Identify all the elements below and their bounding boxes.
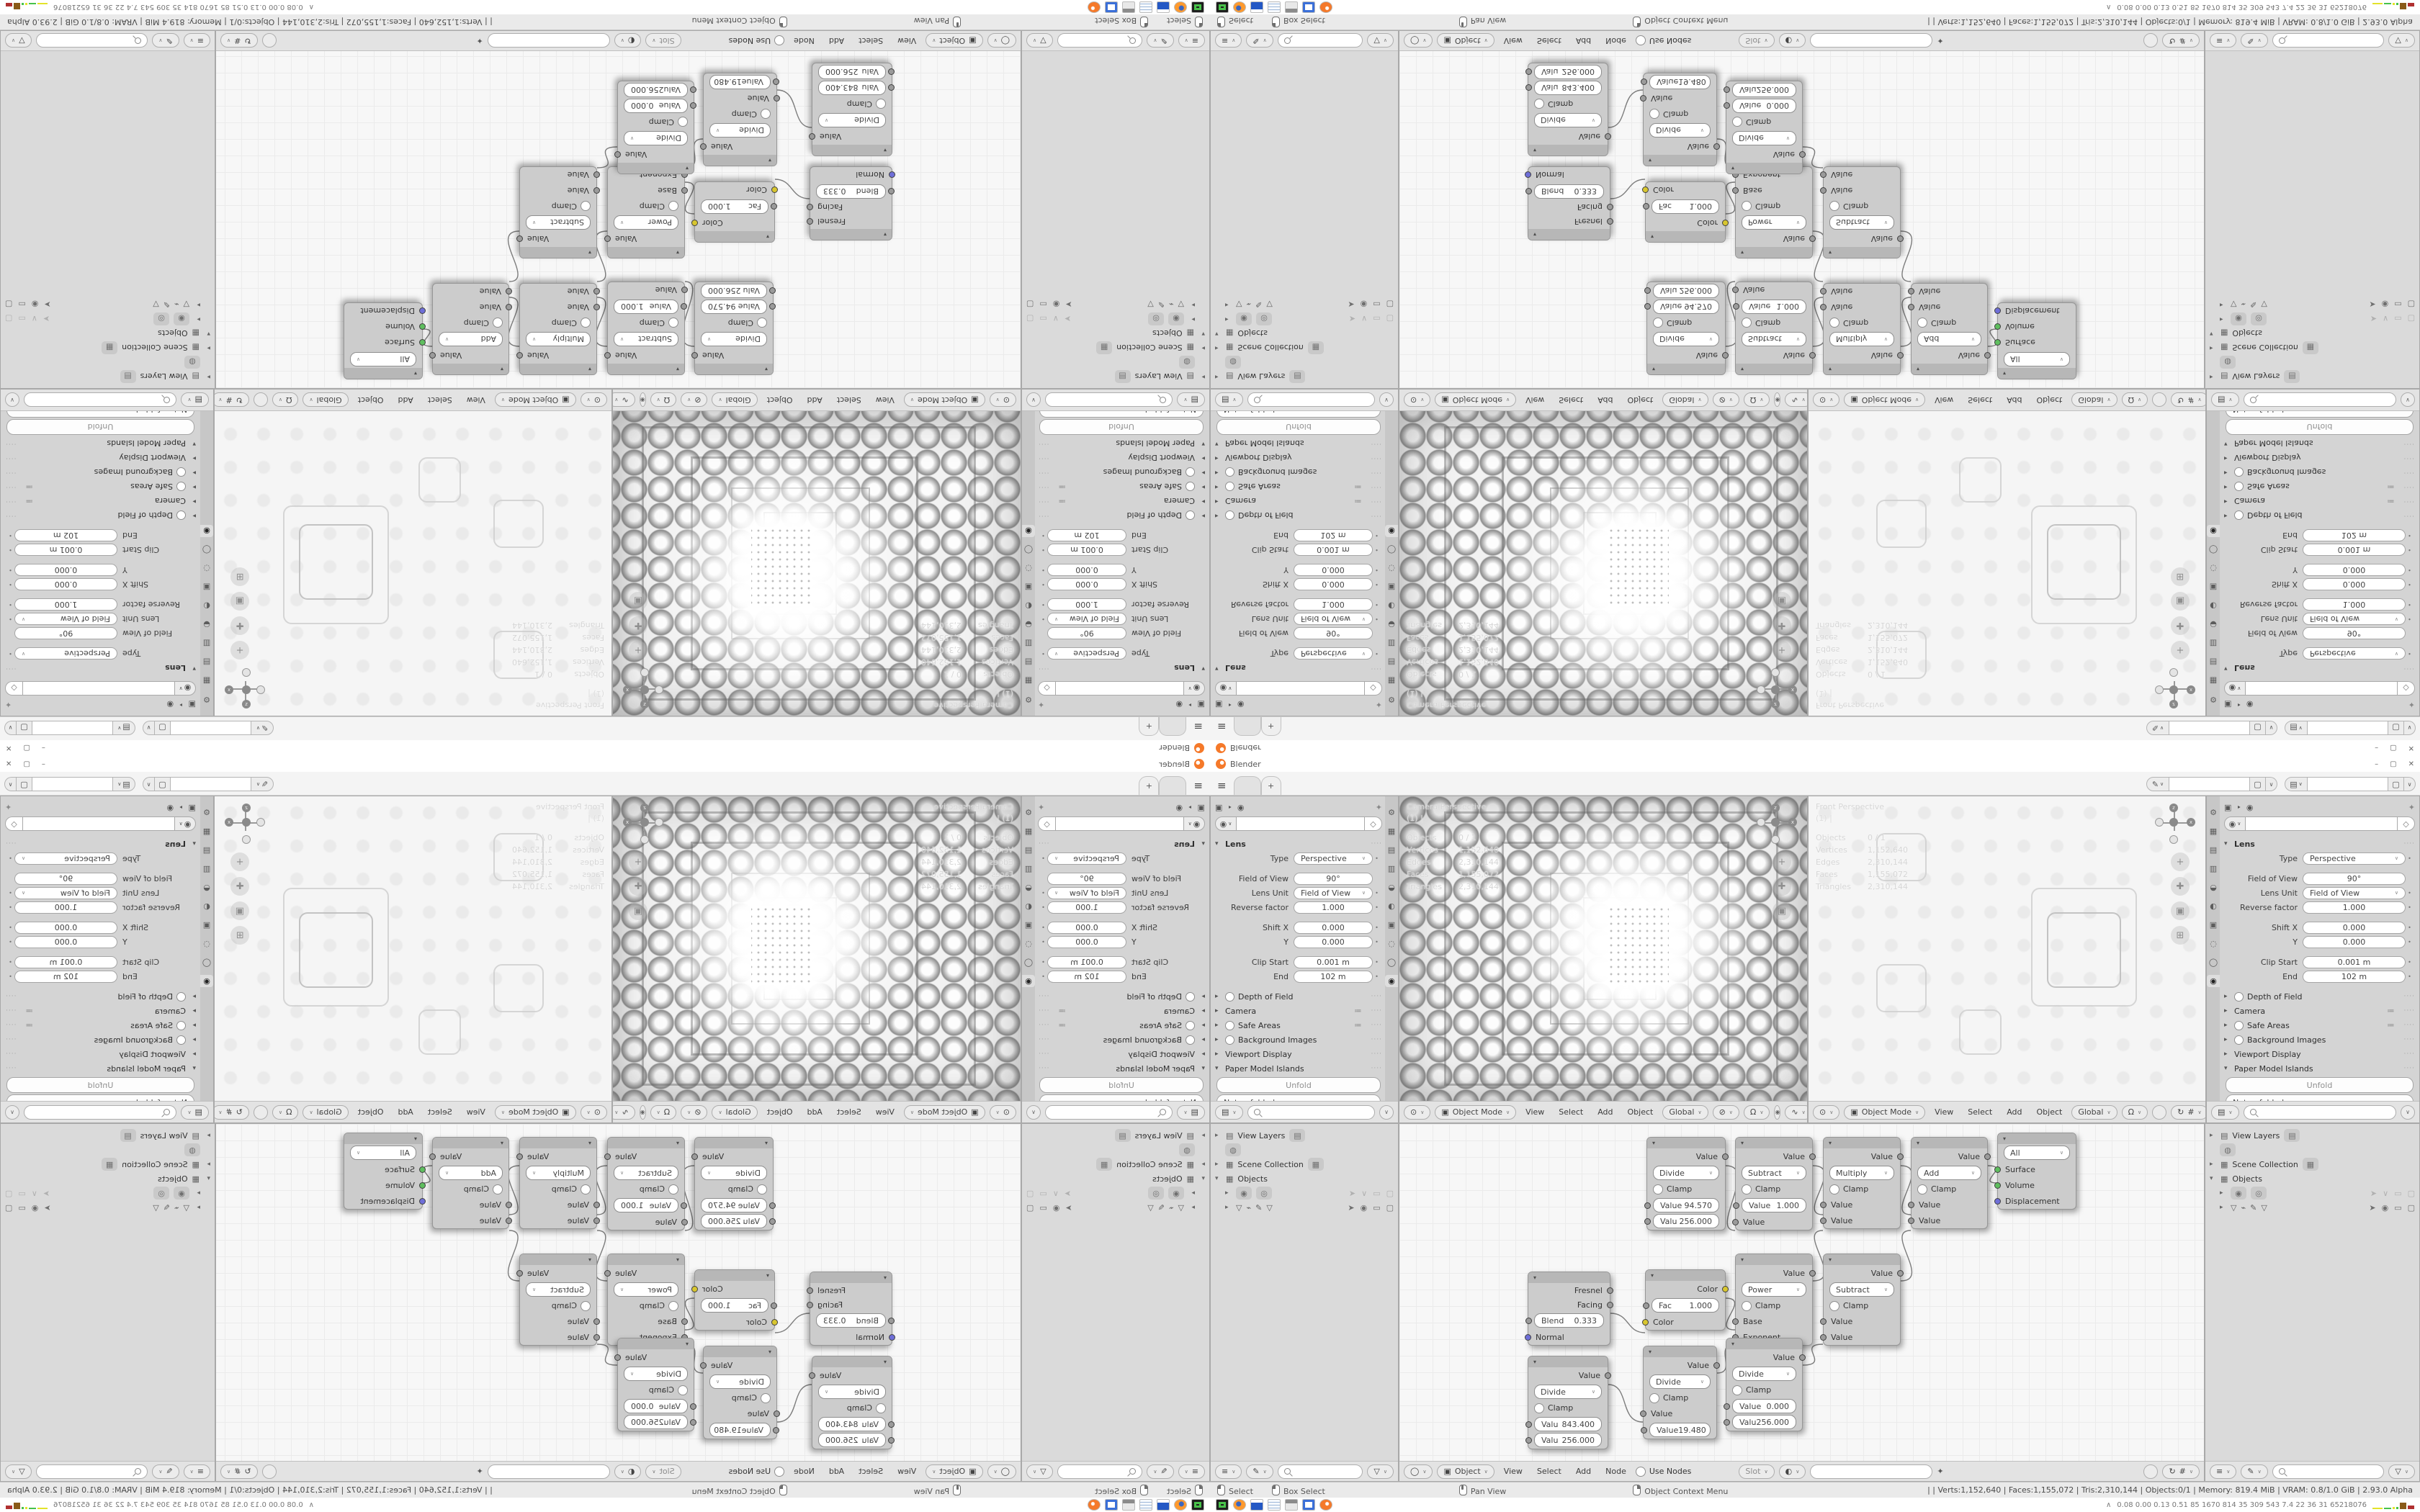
menu-select[interactable]: Select — [1554, 1107, 1588, 1117]
camera-name-field[interactable] — [1055, 816, 1183, 831]
menu-add[interactable]: Add — [1571, 36, 1596, 45]
node-collapse-triangle[interactable]: ▾ — [608, 247, 684, 258]
checkbox-circle[interactable] — [1225, 1035, 1234, 1045]
camera-view-button[interactable]: ▣ — [1773, 901, 1791, 920]
checkbox-circle[interactable] — [2234, 482, 2244, 492]
outliner-row-camera-object[interactable]: ▸ ◉ ◎ ➤ ∨ ▭ ▢ — [5, 1186, 200, 1200]
proportional-edit-button[interactable]: ◉ — [1774, 393, 1780, 408]
menu-node[interactable]: Node — [1600, 1467, 1631, 1476]
filter-id-dropdown[interactable]: ✎∨ — [2241, 1464, 2267, 1479]
value-input-field[interactable]: Value0.000 — [1732, 99, 1796, 113]
orientation-dropdown[interactable]: Global∨ — [302, 393, 348, 408]
math-node-subtract-1[interactable]: ▾ Value Subtract∨ Clamp Value1.000 Value — [607, 1137, 685, 1230]
collapse-chevron-icon[interactable]: ∨ — [1379, 393, 1394, 408]
tab-render-icon[interactable]: ▦ — [1022, 825, 1035, 837]
menu-hamburger-icon[interactable]: ≡ — [1193, 779, 1203, 792]
node-collapse-triangle[interactable]: ▾ — [1528, 145, 1608, 156]
orientation-dropdown[interactable]: Global∨ — [1662, 393, 1708, 408]
checkbox-circle[interactable] — [1225, 482, 1234, 492]
unfold-button[interactable]: Unfold — [1216, 1077, 1381, 1093]
value-input-field[interactable]: Valu256.000 — [1534, 65, 1602, 79]
math-operation-dropdown[interactable]: Divide∨ — [1653, 332, 1719, 346]
math-node-subtract-1[interactable]: ▾ Value Subtract∨ Clamp Value1.000 Value — [1735, 282, 1813, 375]
outliner-row-view-layers[interactable]: ▸▤ View Layers ▤ — [5, 1128, 210, 1143]
math-operation-dropdown[interactable]: Divide∨ — [818, 113, 886, 127]
mode-dropdown[interactable]: ▣Object Mode∨ — [1844, 393, 1925, 408]
node-collapse-triangle[interactable]: ▾ — [1912, 364, 1987, 374]
disable-render-icon[interactable]: ▢ — [2408, 1203, 2415, 1212]
image-viewer-app-icon[interactable] — [1302, 1499, 1315, 1511]
fake-user-shield-icon[interactable]: ◇ — [5, 816, 22, 831]
window-app-icon[interactable] — [1285, 1499, 1298, 1511]
node-collapse-triangle[interactable]: ▾ — [812, 145, 892, 156]
tab-object-icon[interactable]: ▣ — [1022, 581, 1035, 593]
value-input-field[interactable]: Value0.000 — [624, 99, 688, 113]
disable-viewport-icon[interactable]: ▭ — [1039, 1203, 1047, 1212]
menu-hamburger-icon[interactable]: ≡ — [1217, 779, 1227, 792]
math-operation-dropdown[interactable]: Subtract∨ — [1829, 215, 1894, 230]
camera-panel[interactable]: ▸Camera ≔···· — [1038, 494, 1205, 508]
lens-type-dropdown[interactable]: Perspective∨ — [14, 852, 117, 865]
viewport-display-panel[interactable]: ▸Viewport Display···· — [2224, 1047, 2415, 1061]
math-node-power[interactable]: ▾ Value Power∨ Clamp Base Exponent — [607, 166, 685, 258]
pin-icon[interactable]: ✦ — [2408, 803, 2415, 812]
safe-areas-panel[interactable]: ▸ Safe Areas ≔···· — [1215, 480, 1382, 494]
safe-areas-panel[interactable]: ▸ Safe Areas ≔···· — [5, 1018, 196, 1032]
blender-app-icon[interactable] — [1088, 1, 1101, 13]
filter-button[interactable]: ▽∨ — [2388, 1464, 2415, 1479]
zoom-button[interactable]: + — [230, 852, 249, 871]
lens-unit-dropdown[interactable]: Field of View∨ — [14, 613, 117, 626]
editor-type-button[interactable]: ▤∨ — [2211, 1105, 2239, 1120]
outliner-row-objects[interactable]: ▾▦ Objects — [1026, 326, 1205, 341]
display-mode-dropdown[interactable]: ≡∨ — [1215, 1464, 1242, 1479]
outliner-row-view-layers[interactable]: ▸▤ View Layers ▤ — [1215, 1128, 1394, 1143]
fake-user-shield-icon[interactable]: ◇ — [1038, 816, 1055, 831]
slot-dropdown[interactable]: Slot∨ — [1739, 1464, 1774, 1479]
fov-field[interactable]: 90° — [2303, 628, 2406, 640]
properties-search-input[interactable] — [2244, 393, 2396, 408]
outliner-search-input[interactable] — [1278, 34, 1363, 48]
tab-render-icon[interactable]: ▦ — [1385, 825, 1398, 837]
collapse-chevron-icon[interactable]: ∨ — [5, 393, 19, 408]
lens-type-dropdown[interactable]: Perspective∨ — [14, 648, 117, 660]
menu-add[interactable]: Add — [824, 1467, 849, 1476]
paper-model-islands-panel[interactable]: ▾Paper Model Islands···· — [2224, 436, 2415, 451]
node-collapse-triangle[interactable]: ▾ — [608, 1254, 684, 1265]
collapse-chevron-icon[interactable]: ∨ — [1026, 1105, 1041, 1120]
image-viewer-app-icon[interactable] — [1105, 1499, 1118, 1511]
node-collapse-triangle[interactable]: ▾ — [618, 163, 694, 174]
editor-type-button[interactable]: ▤∨ — [1177, 393, 1205, 408]
hide-icon[interactable]: ∨ — [2383, 1189, 2388, 1198]
editor-type-button[interactable]: ⊙∨ — [1813, 393, 1839, 408]
tab-output-icon[interactable]: ▤ — [1022, 844, 1035, 856]
camera-name-field[interactable] — [22, 681, 174, 696]
math-node-divide-2[interactable]: ▾ Value Divide∨ Clamp Valu843.400 Valu25… — [1528, 63, 1608, 156]
overlays-toggle-group[interactable]: ↻#∨ — [2171, 393, 2206, 408]
copy-datablock-icon[interactable]: ▢ — [2250, 777, 2266, 791]
workspace-tab[interactable] — [1234, 717, 1261, 736]
depth-of-field-panel[interactable]: ▸ Depth of Field···· — [5, 989, 196, 1004]
viewport-front[interactable]: Front Perspective (1) | Objects0 / 1 Ver… — [1808, 389, 2206, 716]
zoom-button[interactable]: + — [1773, 641, 1791, 660]
tab-physics-icon[interactable]: ◯ — [1022, 956, 1035, 968]
selectable-icon[interactable]: ➤ — [44, 1203, 50, 1212]
collection-chip-icon[interactable]: ▦ — [1308, 341, 1324, 354]
tab-scene-icon[interactable]: ◒ — [2207, 881, 2220, 894]
tab-tool-icon[interactable]: ⚙ — [1385, 806, 1398, 819]
tab-world-icon[interactable]: ◐ — [1385, 900, 1398, 912]
hide-icon[interactable]: ◉ — [1053, 300, 1060, 310]
node-collapse-triangle[interactable]: ▾ — [1824, 1138, 1900, 1148]
value-input-field[interactable]: Value19.480 — [1649, 75, 1711, 89]
hide-icon[interactable]: ◉ — [1053, 1203, 1060, 1212]
menu-add[interactable]: Add — [393, 395, 418, 405]
minimize-button[interactable]: – — [2375, 744, 2378, 752]
collapse-chevron-icon[interactable]: ∨ — [1026, 393, 1041, 408]
filter-button[interactable]: ▽∨ — [1367, 1464, 1394, 1479]
falloff-dropdown[interactable]: ∿∨ — [612, 393, 635, 408]
tab-output-icon[interactable]: ▤ — [200, 656, 213, 668]
shift-y-field[interactable]: 0.000 — [1047, 564, 1126, 577]
unfold-button[interactable]: Unfold — [1216, 419, 1381, 435]
disable-viewport-icon[interactable]: ▭ — [1039, 315, 1047, 324]
camera-view-button[interactable]: ▣ — [2171, 592, 2190, 611]
paper-model-islands-panel[interactable]: ▾Paper Model Islands···· — [1038, 436, 1205, 451]
clip-end-field[interactable]: 102 m — [14, 530, 117, 542]
outliner-row-world[interactable]: ◍ — [1225, 355, 1394, 369]
fac-input-field[interactable]: Fac1.000 — [701, 1298, 768, 1313]
brush-name-field[interactable] — [2169, 721, 2250, 735]
copy-datablock-icon[interactable]: ▢ — [2388, 777, 2404, 791]
selectable-icon[interactable]: ➤ — [2370, 1189, 2377, 1198]
close-button[interactable]: ✕ — [6, 744, 12, 752]
outliner-row-camera-object[interactable]: ▸ ◉ ◎ ➤ ∨ ▭ ▢ — [5, 312, 200, 326]
node-collapse-triangle[interactable]: ▾ — [1647, 364, 1725, 374]
math-operation-dropdown[interactable]: Power∨ — [1742, 1282, 1806, 1297]
proportional-edit-button[interactable]: ◉ — [1774, 1105, 1780, 1120]
disable-render-icon[interactable]: ▢ — [1026, 300, 1034, 310]
clip-end-field[interactable]: 102 m — [2303, 530, 2406, 542]
firefox-app-icon[interactable] — [1174, 1499, 1187, 1511]
minimize-button[interactable]: – — [2375, 760, 2378, 768]
math-operation-dropdown[interactable]: Subtract∨ — [526, 1282, 591, 1297]
outliner-row-scene-collection[interactable]: ▸▦ Scene Collection ▦ — [1026, 341, 1205, 355]
tab-modifiers-icon[interactable]: ◌ — [200, 937, 213, 950]
brush-datablock-selector[interactable]: ✎∨ ▢ ∨ — [2146, 721, 2277, 735]
tab-physics-icon[interactable]: ◯ — [2207, 956, 2220, 968]
disable-viewport-icon[interactable]: ▭ — [1373, 300, 1380, 310]
node-collapse-triangle[interactable]: ▾ — [695, 364, 773, 374]
clamp-checkbox[interactable] — [1653, 318, 1663, 328]
mode-dropdown[interactable]: ▣Object Mode∨ — [495, 1105, 576, 1120]
proportional-edit-button[interactable]: ◉ — [640, 1105, 646, 1120]
tab-physics-icon[interactable]: ◯ — [200, 956, 213, 968]
math-node-divide-1[interactable]: ▾ Value Divide∨ Clamp Value94.570 Valu25… — [1646, 1137, 1726, 1230]
tab-tool-icon[interactable]: ⚙ — [200, 806, 213, 819]
camera-panel[interactable]: ▸Camera ≔···· — [5, 1004, 196, 1018]
pan-hand-button[interactable]: ✚ — [629, 616, 647, 635]
mode-dropdown[interactable]: ▣Object Mode∨ — [1435, 393, 1516, 408]
fake-user-shield-icon[interactable]: ◇ — [5, 681, 22, 696]
lens-type-dropdown[interactable]: Perspective∨ — [2303, 648, 2406, 660]
lens-unit-dropdown[interactable]: Field of View∨ — [14, 887, 117, 899]
copy-datablock-icon[interactable]: ▢ — [16, 777, 32, 791]
tab-view-layer-icon[interactable]: ▥ — [200, 863, 213, 875]
clamp-checkbox[interactable] — [668, 1301, 678, 1311]
checkbox-circle[interactable] — [176, 511, 186, 521]
zoom-button[interactable]: + — [2171, 641, 2190, 660]
math-node-divide-2[interactable]: ▾ Value Divide∨ Clamp Valu843.400 Valu25… — [1528, 1356, 1608, 1449]
camera-panel[interactable]: ▸Camera ≔···· — [5, 494, 196, 508]
disable-render-icon[interactable]: ▢ — [5, 315, 12, 324]
unfold-button[interactable]: Unfold — [6, 419, 194, 435]
tab-world-icon[interactable]: ◐ — [2207, 600, 2220, 612]
menu-add[interactable]: Add — [1592, 1107, 1618, 1117]
outliner-row-objects[interactable]: ▾▦ Objects — [2210, 1171, 2415, 1186]
fov-field[interactable]: 90° — [1047, 628, 1126, 640]
tab-modifiers-icon[interactable]: ◌ — [2207, 937, 2220, 950]
slot-dropdown[interactable]: Slot∨ — [1739, 34, 1774, 48]
node-collapse-triangle[interactable]: ▾ — [608, 364, 684, 374]
gizmo-z-axis[interactable]: z — [640, 804, 649, 812]
viewport-display-panel[interactable]: ▸Viewport Display···· — [1038, 1047, 1205, 1061]
mode-dropdown[interactable]: ▣Object Mode∨ — [904, 1105, 985, 1120]
fake-user-shield-icon[interactable]: ◇ — [1365, 681, 1382, 696]
node-collapse-triangle[interactable]: ▾ — [344, 1133, 422, 1144]
disable-render-icon[interactable]: ▢ — [1026, 315, 1034, 324]
properties-search-input[interactable] — [1045, 393, 1173, 408]
menu-add[interactable]: Add — [824, 36, 849, 45]
brush-name-field[interactable] — [2169, 777, 2250, 791]
tab-scene-icon[interactable]: ◒ — [1022, 618, 1035, 631]
snap-toggle[interactable] — [262, 1464, 277, 1479]
value-input-field[interactable]: Valu256.000 — [624, 83, 688, 97]
checkbox-circle[interactable] — [1186, 468, 1195, 477]
disable-viewport-icon[interactable]: ▭ — [18, 1203, 25, 1212]
slot-dropdown[interactable]: Slot∨ — [645, 1464, 681, 1479]
editor-type-button[interactable]: ◯∨ — [1404, 1464, 1433, 1479]
math-operation-dropdown[interactable]: Divide∨ — [701, 332, 767, 346]
snap-magnet-button[interactable]: Ω∨ — [2122, 393, 2148, 408]
shift-x-field[interactable]: 0.000 — [1294, 922, 1373, 934]
snap-target-button[interactable]: ⊘∨ — [1713, 393, 1739, 408]
navigation-gizmo[interactable]: z x — [623, 668, 663, 708]
lens-unit-dropdown[interactable]: Field of View∨ — [1047, 887, 1126, 899]
node-collapse-triangle[interactable]: ▾ — [608, 1138, 684, 1148]
camera-name-field[interactable] — [1237, 816, 1365, 831]
fov-field[interactable]: 90° — [14, 873, 117, 885]
math-operation-dropdown[interactable]: Add∨ — [1917, 1166, 1981, 1180]
math-node-divide-3[interactable]: ▾ Value Divide∨ Clamp Value Value19.480 — [703, 73, 777, 166]
menu-add[interactable]: Add — [393, 1107, 418, 1117]
outliner-row-world[interactable]: ◍ — [1026, 1143, 1195, 1157]
image-datablock-selector[interactable]: ▤∨ ▢ ∨ — [2285, 777, 2416, 791]
clamp-checkbox[interactable] — [493, 318, 503, 328]
navigation-gizmo[interactable]: z x — [225, 804, 265, 844]
tab-tool-icon[interactable]: ⚙ — [1022, 693, 1035, 706]
pin-icon[interactable]: ✦ — [1038, 701, 1044, 710]
minimize-button[interactable]: – — [42, 744, 45, 752]
clamp-checkbox[interactable] — [668, 318, 678, 328]
shift-x-field[interactable]: 0.000 — [1294, 579, 1373, 591]
tab-world-icon[interactable]: ◐ — [1385, 600, 1398, 612]
checkbox-circle[interactable] — [1186, 1021, 1195, 1030]
disable-render-icon[interactable]: ▢ — [5, 1203, 12, 1212]
chevron-down-icon[interactable]: ∨ — [143, 777, 154, 791]
math-node-multiply[interactable]: ▾ Value Multiply∨ Clamp Value Value — [1823, 1137, 1901, 1229]
node-collapse-triangle[interactable]: ▾ — [1644, 1346, 1716, 1357]
shift-y-field[interactable]: 0.000 — [1047, 936, 1126, 948]
value-input-field[interactable]: Valu843.400 — [1534, 81, 1602, 95]
falloff-dropdown[interactable]: ∿∨ — [612, 1105, 635, 1120]
snap-magnet-button[interactable]: Ω∨ — [272, 393, 299, 408]
tab-object-data-icon[interactable]: ◉ — [1022, 525, 1035, 537]
clamp-checkbox[interactable] — [1829, 202, 1839, 212]
outliner-row-camera-object[interactable]: ▸ ◉ ◎ ➤ ∨ ▭ ▢ — [1225, 1186, 1394, 1200]
tab-scene-icon[interactable]: ◒ — [1022, 881, 1035, 894]
background-images-panel[interactable]: ▸ Background Images···· — [1038, 465, 1205, 480]
fov-field[interactable]: 90° — [1047, 873, 1126, 885]
outliner-row-objects[interactable]: ▾▦ Objects — [1215, 326, 1394, 341]
save-app-icon[interactable] — [1157, 1, 1170, 13]
unfold-button[interactable]: Unfold — [1039, 419, 1204, 435]
clamp-checkbox[interactable] — [1742, 318, 1752, 328]
checkbox-circle[interactable] — [1186, 992, 1195, 1002]
math-operation-dropdown[interactable]: Divide∨ — [1732, 1367, 1796, 1381]
checkbox-circle[interactable] — [1186, 511, 1195, 521]
disable-viewport-icon[interactable]: ▭ — [2394, 1203, 2401, 1212]
tab-physics-icon[interactable]: ◯ — [2207, 544, 2220, 556]
image-viewer-app-icon[interactable] — [1302, 1, 1315, 13]
menu-view[interactable]: View — [1520, 1107, 1549, 1117]
value-input-field[interactable]: Valu843.400 — [818, 1417, 886, 1431]
lens-panel-header[interactable]: ▾Lens···· — [1038, 837, 1205, 851]
math-node-subtract-1[interactable]: ▾ Value Subtract∨ Clamp Value1.000 Value — [607, 282, 685, 375]
math-operation-dropdown[interactable]: Power∨ — [1742, 215, 1806, 230]
node-collapse-triangle[interactable]: ▾ — [520, 247, 596, 258]
blender-app-icon[interactable] — [1319, 1499, 1332, 1511]
collection-chip-icon[interactable]: ▦ — [2303, 1158, 2318, 1171]
menu-select[interactable]: Select — [853, 1467, 888, 1476]
navigation-gizmo[interactable]: z x — [1757, 804, 1797, 844]
menu-select[interactable]: Select — [832, 395, 866, 405]
add-workspace-tab-button[interactable]: + — [1261, 717, 1281, 736]
gizmos-toggle[interactable] — [2152, 1105, 2166, 1120]
clamp-checkbox[interactable] — [1917, 318, 1927, 328]
snap-options-group[interactable]: ↻#∨ — [2162, 1464, 2200, 1479]
depth-of-field-panel[interactable]: ▸ Depth of Field···· — [1038, 989, 1205, 1004]
node-collapse-triangle[interactable]: ▾ — [704, 155, 776, 166]
viewport-front-canvas[interactable]: Front Perspective (1) | Objects0 / 1 Ver… — [1809, 796, 2205, 1101]
brush-datablock-selector[interactable]: ✎∨ ▢ ∨ — [143, 777, 274, 791]
pan-hand-button[interactable]: ✚ — [1773, 877, 1791, 896]
node-collapse-triangle[interactable]: ▾ — [1998, 368, 2076, 379]
snap-target-button[interactable]: ⊘∨ — [681, 393, 707, 408]
node-collapse-triangle[interactable]: ▾ — [810, 1272, 892, 1283]
clip-end-field[interactable]: 102 m — [1047, 530, 1126, 542]
orientation-dropdown[interactable]: Global∨ — [1662, 1105, 1708, 1120]
filter-id-dropdown[interactable]: ✎∨ — [152, 34, 179, 48]
clamp-checkbox[interactable] — [581, 1301, 591, 1311]
disable-render-icon[interactable]: ▢ — [5, 1189, 12, 1198]
node-collapse-triangle[interactable]: ▾ — [1646, 231, 1725, 242]
node-collapse-triangle[interactable]: ▾ — [520, 1138, 596, 1148]
zoom-button[interactable]: + — [230, 641, 249, 660]
reverse-factor-field[interactable]: 1.000 — [2303, 599, 2406, 611]
selectable-icon[interactable]: ➤ — [44, 300, 50, 310]
menu-hamburger-icon[interactable]: ≡ — [1193, 720, 1203, 733]
collection-chip-icon[interactable]: ▦ — [1308, 1158, 1324, 1171]
outliner-row-mesh-object[interactable]: ▸ ▽ ⌁ ✎ ▽ ➤ ◉ ▭ ▢ — [2220, 1200, 2415, 1215]
gizmo-x-axis[interactable]: x — [2187, 685, 2195, 694]
notepad-app-icon[interactable] — [1268, 1, 1281, 13]
camera-panel[interactable]: ▸Camera ≔···· — [1038, 1004, 1205, 1018]
clip-start-field[interactable]: 0.001 m — [1047, 956, 1126, 968]
checkbox-circle[interactable] — [2234, 1021, 2244, 1030]
notepad-app-icon[interactable] — [1139, 1499, 1152, 1511]
gizmos-toggle[interactable] — [2152, 393, 2166, 408]
editor-type-button[interactable]: ⊙∨ — [581, 393, 607, 408]
filter-button[interactable]: ▽∨ — [5, 1464, 32, 1479]
outliner-row-mesh-object[interactable]: ▸ ▽ ⌁ ✎ ▽ ➤ ◉ ▭ ▢ — [5, 1200, 200, 1215]
use-nodes-checkbox[interactable] — [1636, 36, 1646, 46]
material-icon-dropdown[interactable]: ◐∨ — [1779, 34, 1806, 48]
menu-object[interactable]: Object — [1623, 395, 1659, 405]
lens-type-dropdown[interactable]: Perspective∨ — [1047, 648, 1126, 660]
clamp-checkbox[interactable] — [876, 99, 886, 109]
menu-select[interactable]: Select — [853, 36, 888, 45]
tab-output-icon[interactable]: ▤ — [1022, 656, 1035, 668]
tab-tool-icon[interactable]: ⚙ — [200, 693, 213, 706]
gizmo-z-axis[interactable]: z — [2169, 804, 2178, 812]
depth-of-field-panel[interactable]: ▸ Depth of Field···· — [2224, 989, 2415, 1004]
properties-search-input[interactable] — [24, 1105, 176, 1120]
filter-button[interactable]: ▽∨ — [1026, 1464, 1053, 1479]
outliner-row-scene-collection[interactable]: ▸▦ Scene Collection ▦ — [5, 341, 210, 355]
menu-object[interactable]: Object — [353, 1107, 389, 1117]
hide-icon[interactable]: ∨ — [32, 1189, 37, 1198]
node-collapse-triangle[interactable]: ▾ — [695, 1138, 773, 1148]
unfold-button[interactable]: Unfold — [2226, 419, 2414, 435]
menu-select[interactable]: Select — [1532, 1467, 1567, 1476]
outliner-row-world[interactable]: ◍ — [1225, 1143, 1394, 1157]
collection-chip-icon[interactable]: ▦ — [1096, 341, 1112, 354]
tab-render-icon[interactable]: ▦ — [200, 675, 213, 687]
outliner-row-world[interactable]: ◍ — [5, 1143, 200, 1157]
collection-chip-icon[interactable]: ▦ — [1096, 1158, 1112, 1171]
math-operation-dropdown[interactable]: Divide∨ — [1732, 131, 1796, 145]
collection-chip-icon[interactable]: ▦ — [102, 1158, 117, 1171]
tab-object-icon[interactable]: ▣ — [2207, 581, 2220, 593]
firefox-app-icon[interactable] — [1233, 1, 1246, 13]
close-button[interactable]: ✕ — [6, 760, 12, 768]
tab-tool-icon[interactable]: ⚙ — [2207, 693, 2220, 706]
node-collapse-triangle[interactable]: ▾ — [1912, 1138, 1987, 1148]
camera-view-button[interactable]: ▣ — [2171, 901, 2190, 920]
clamp-checkbox[interactable] — [1742, 202, 1752, 212]
node-collapse-triangle[interactable]: ▾ — [1528, 1272, 1610, 1283]
checkbox-circle[interactable] — [2234, 1035, 2244, 1045]
editor-type-button[interactable]: ▤∨ — [181, 393, 209, 408]
snap-magnet-button[interactable]: Ω∨ — [1744, 1105, 1770, 1120]
outliner-row-objects[interactable]: ▾▦ Objects — [1215, 1171, 1394, 1186]
camera-name-field[interactable] — [2246, 816, 2398, 831]
checkbox-circle[interactable] — [1225, 992, 1234, 1002]
safe-areas-panel[interactable]: ▸ Safe Areas ≔···· — [1215, 1018, 1382, 1032]
tab-scene-icon[interactable]: ◒ — [2207, 618, 2220, 631]
